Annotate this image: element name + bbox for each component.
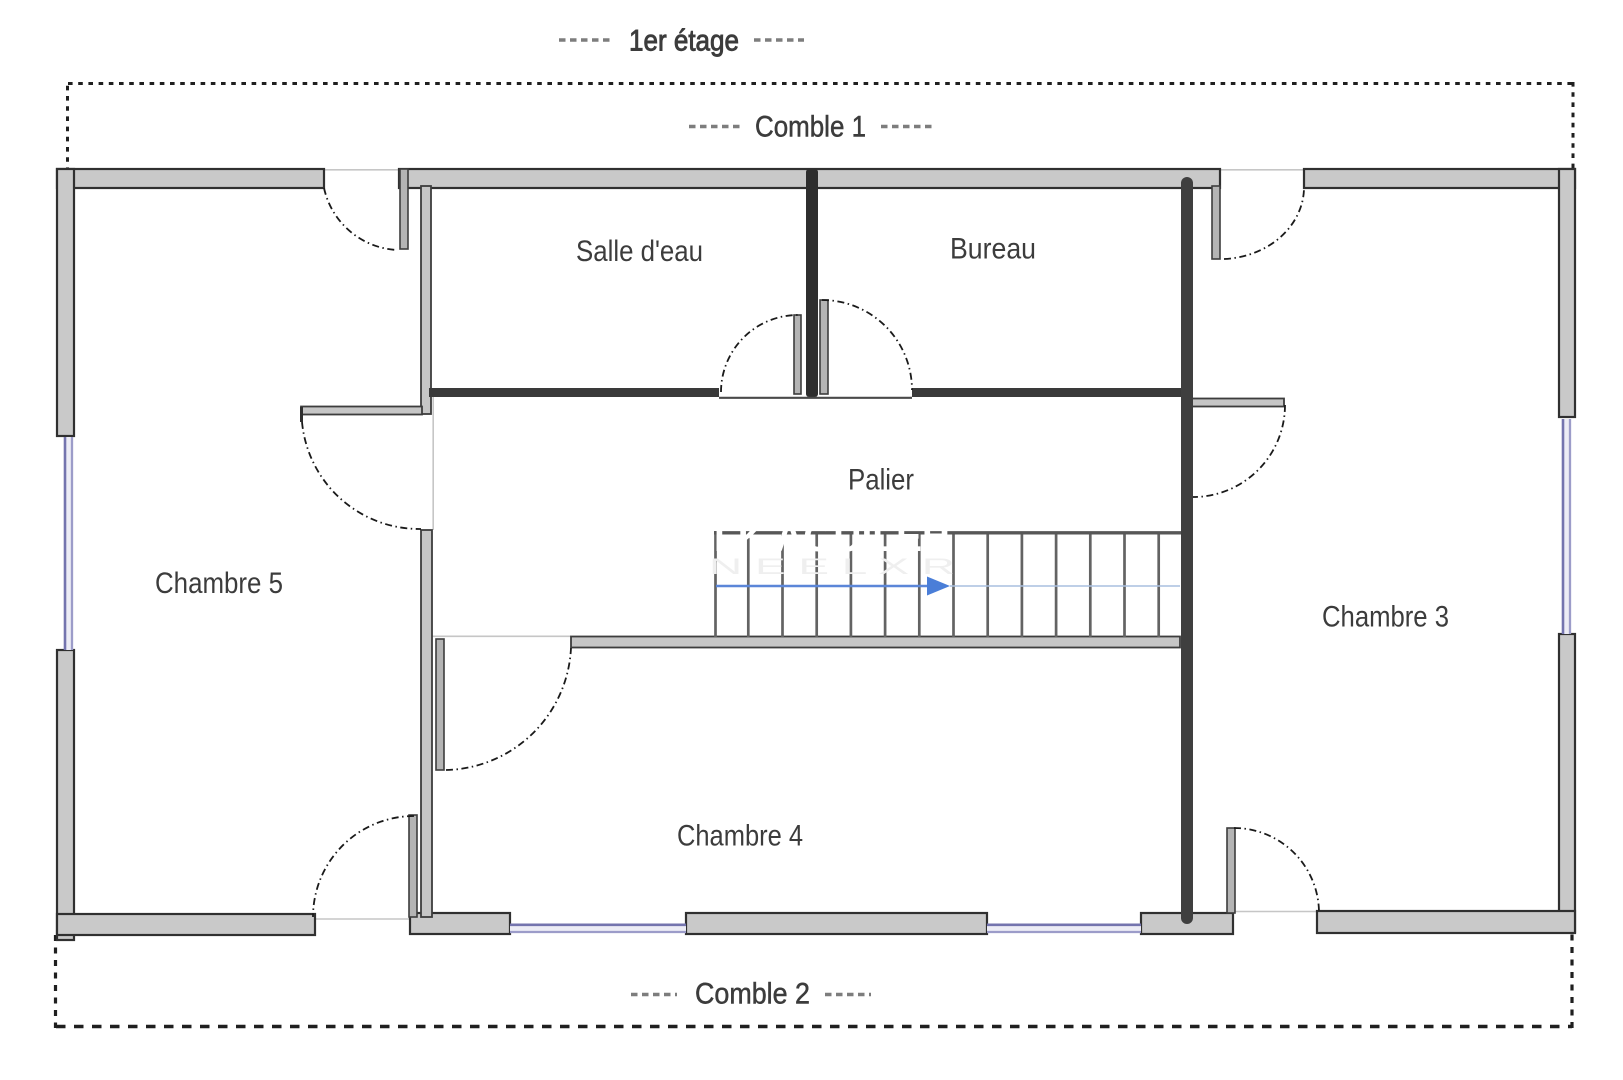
svg-text:Palier: Palier: [848, 464, 914, 497]
svg-text:Chambre 5: Chambre 5: [155, 567, 283, 600]
svg-text:Comble 2: Comble 2: [695, 978, 810, 1011]
svg-text:Salle d'eau: Salle d'eau: [576, 235, 703, 268]
svg-text:Chambre 4: Chambre 4: [677, 820, 803, 853]
svg-text:Chambre 3: Chambre 3: [1322, 601, 1449, 634]
svg-text:Bureau: Bureau: [950, 233, 1036, 266]
svg-text:FK AGUILEH: FK AGUILEH: [714, 513, 950, 560]
svg-text:Comble 1: Comble 1: [755, 111, 866, 144]
svg-text:1er étage: 1er étage: [629, 25, 739, 58]
svg-text:N E E L X R: N E E L X R: [709, 554, 955, 579]
